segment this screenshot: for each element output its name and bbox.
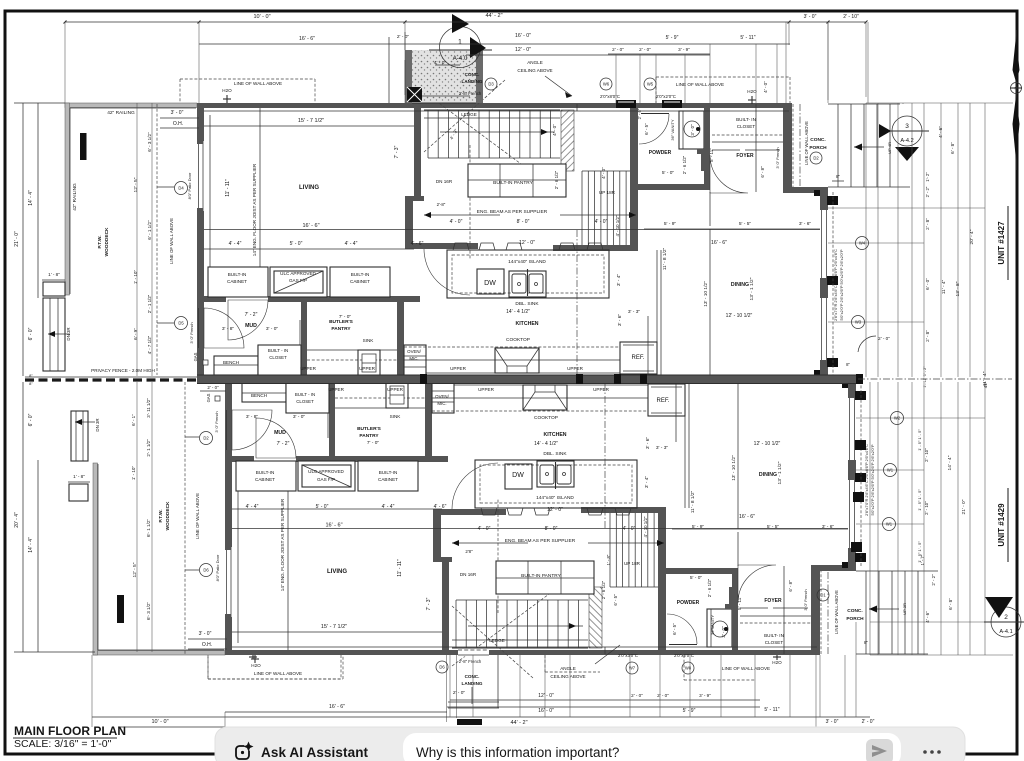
svg-text:4' - 0": 4' - 0" [478, 526, 491, 532]
svg-text:DN 16R: DN 16R [460, 572, 477, 577]
svg-text:6' - 0": 6' - 0" [28, 413, 34, 426]
svg-text:13' - 10 1/2": 13' - 10 1/2" [731, 455, 737, 481]
svg-text:UPPER: UPPER [567, 366, 584, 371]
svg-text:W5: W5 [647, 82, 654, 87]
svg-text:ANGLE: ANGLE [527, 60, 543, 65]
svg-text:LEDGE: LEDGE [489, 638, 505, 643]
svg-text:P.T.W.: P.T.W. [97, 235, 103, 248]
svg-text:D5: D5 [178, 321, 184, 326]
svg-text:4' - 0": 4' - 0" [763, 81, 768, 93]
svg-text:BENCH: BENCH [223, 360, 239, 365]
svg-text:1' - 8": 1' - 8" [48, 272, 60, 277]
svg-text:11' - 8 1/2": 11' - 8 1/2" [662, 247, 668, 270]
svg-text:H2O: H2O [747, 89, 757, 94]
svg-text:2' - 6 1/2": 2' - 6 1/2" [682, 155, 687, 174]
svg-text:3' - 6": 3' - 6" [799, 221, 812, 227]
svg-text:2' - 0": 2' - 0" [207, 385, 219, 390]
svg-text:44' - 2": 44' - 2" [485, 13, 502, 19]
svg-text:13' - 10 1/2": 13' - 10 1/2" [703, 281, 709, 307]
svg-text:5' - 9": 5' - 9" [692, 524, 705, 530]
svg-text:8": 8" [864, 640, 868, 645]
svg-text:4' - 0": 4' - 0" [623, 526, 636, 532]
svg-text:POWDER: POWDER [649, 150, 672, 156]
svg-text:44' - 2": 44' - 2" [510, 720, 527, 726]
svg-text:2' - 6 1/2": 2' - 6 1/2" [554, 170, 559, 189]
svg-text:CEILING ABOVE: CEILING ABOVE [550, 674, 585, 679]
svg-text:4' - 6": 4' - 6" [411, 241, 424, 247]
svg-text:2' - 0": 2' - 0" [878, 336, 890, 341]
svg-text:CONC.: CONC. [465, 674, 480, 679]
svg-text:36"VANITY: 36"VANITY [710, 615, 715, 635]
svg-text:11' - 4": 11' - 4" [941, 279, 947, 294]
svg-text:5' - 0": 5' - 0" [290, 241, 303, 247]
svg-text:LANDING: LANDING [462, 681, 483, 686]
svg-text:4' - 7 1/2": 4' - 7 1/2" [147, 335, 152, 354]
svg-text:14' - 4": 14' - 4" [28, 537, 34, 553]
svg-text:COOKTOP: COOKTOP [534, 415, 558, 421]
svg-text:8": 8" [29, 381, 33, 386]
svg-text:UPPER: UPPER [359, 366, 376, 371]
svg-text:W2: W2 [894, 416, 901, 421]
svg-text:H2O: H2O [251, 663, 261, 668]
svg-text:2' - 0": 2' - 0" [612, 47, 624, 52]
svg-text:3' - 3": 3' - 3" [628, 309, 641, 315]
svg-text:12' - 5": 12' - 5" [132, 562, 138, 577]
svg-text:ULC APPROVED: ULC APPROVED [308, 469, 344, 474]
svg-text:15' - 7 1/2": 15' - 7 1/2" [321, 624, 347, 630]
svg-text:2'-8" French: 2'-8" French [459, 659, 482, 664]
svg-text:A-4.1: A-4.1 [999, 629, 1012, 635]
svg-text:BENCH: BENCH [251, 393, 267, 398]
svg-text:21' - 0": 21' - 0" [961, 499, 967, 514]
svg-text:8'0" Patio Door: 8'0" Patio Door [215, 554, 220, 581]
svg-text:UNIT #1429: UNIT #1429 [997, 503, 1006, 547]
svg-text:2' - 0": 2' - 0" [657, 693, 669, 698]
svg-text:D6: D6 [439, 665, 445, 670]
svg-text:5' - 11": 5' - 11" [740, 35, 755, 41]
svg-text:DBL. SINK: DBL. SINK [543, 451, 567, 457]
svg-text:2' - 1 1/2": 2' - 1 1/2" [147, 294, 152, 313]
svg-text:4' - 10 1/2": 4' - 10 1/2" [615, 215, 620, 236]
svg-text:WOODDECK: WOODDECK [165, 501, 171, 531]
svg-text:BUILT - IN: BUILT - IN [295, 392, 315, 397]
svg-text:4' - 6": 4' - 6" [434, 504, 447, 510]
svg-text:BUILT-IN: BUILT-IN [256, 470, 275, 475]
svg-text:5' - 5": 5' - 5" [739, 221, 752, 227]
svg-text:GAS F/P: GAS F/P [289, 278, 307, 283]
svg-text:LIVING: LIVING [327, 569, 347, 575]
svg-text:ENG. BEAM AS PER SUPPLIER: ENG. BEAM AS PER SUPPLIER [477, 209, 548, 215]
svg-text:D2: D2 [203, 436, 209, 441]
svg-text:CABINET: CABINET [227, 279, 247, 284]
svg-text:20' - 4": 20' - 4" [14, 512, 20, 528]
svg-text:3' - 0": 3' - 0" [804, 14, 817, 20]
svg-text:4' - 0": 4' - 0" [450, 219, 463, 225]
svg-text:2'0"x8'0"C: 2'0"x8'0"C [600, 94, 620, 99]
svg-text:3' - 0": 3' - 0" [721, 626, 726, 638]
svg-text:10' - 0": 10' - 0" [151, 719, 168, 725]
svg-text:W4: W4 [859, 241, 866, 246]
svg-text:20' - 4": 20' - 4" [969, 229, 975, 244]
svg-text:WOODDECK: WOODDECK [104, 227, 110, 257]
svg-text:2'0"x3'0"C: 2'0"x3'0"C [618, 653, 638, 658]
svg-text:2' - 10": 2' - 10" [843, 14, 859, 20]
svg-text:MIC.: MIC. [437, 401, 446, 406]
svg-text:DN 3R: DN 3R [66, 327, 71, 340]
svg-text:12' - 0": 12' - 0" [538, 693, 554, 699]
svg-text:7' - 0": 7' - 0" [339, 314, 352, 320]
svg-text:1' - 8": 1' - 8" [606, 554, 611, 565]
svg-text:LANDING: LANDING [462, 79, 483, 84]
svg-text:KITCHEN: KITCHEN [543, 432, 566, 438]
svg-text:7' - 3": 7' - 3" [394, 145, 400, 158]
svg-text:11' - 8 1/2": 11' - 8 1/2" [690, 490, 696, 513]
svg-text:16' - 0": 16' - 0" [515, 33, 531, 39]
svg-text:PANTRY: PANTRY [359, 433, 379, 439]
svg-text:16' - 6": 16' - 6" [329, 704, 345, 710]
svg-text:4' - 6": 4' - 6" [925, 611, 930, 623]
svg-text:6' - 5": 6' - 5" [644, 123, 649, 135]
svg-text:COOKTOP: COOKTOP [506, 337, 530, 343]
svg-text:14" ENG. FLOOR JOIST AS PER SU: 14" ENG. FLOOR JOIST AS PER SUPPLIER [280, 498, 285, 591]
svg-text:LINE OF WALL ABOVE: LINE OF WALL ABOVE [234, 81, 282, 86]
svg-text:DN 3R: DN 3R [95, 418, 100, 431]
svg-text:6' - 5": 6' - 5" [613, 594, 618, 606]
svg-text:BUILT-IN PANTRY: BUILT-IN PANTRY [493, 180, 534, 186]
svg-text:12' - 0": 12' - 0" [515, 47, 531, 53]
svg-text:DBL. SINK: DBL. SINK [515, 301, 539, 307]
svg-text:OVEN/: OVEN/ [435, 394, 449, 399]
svg-text:BUILT-IN: BUILT-IN [351, 272, 370, 277]
svg-text:5'0"x2'0"P 2'6"x2'6"P 5'0"x2': 5'0"x2'0"P 2'6"x2'6"P 5'0"x2'6"P 2'6"x2'… [840, 249, 844, 321]
svg-text:5' - 11": 5' - 11" [737, 596, 742, 610]
svg-text:2' - 6 1/2": 2' - 6 1/2" [601, 580, 606, 599]
svg-text:5'0"x2'0"P 2'6"x2'6"P 5'0"x2': 5'0"x2'0"P 2'6"x2'6"P 5'0"x2'6"P 2'6"x2'… [871, 444, 875, 516]
svg-text:2' - 8": 2' - 8" [925, 218, 930, 230]
svg-text:2' - 10": 2' - 10" [924, 501, 929, 515]
svg-text:O.H.: O.H. [173, 121, 183, 127]
svg-text:3' - 0": 3' - 0" [293, 414, 306, 420]
svg-text:6' - 8": 6' - 8" [950, 142, 955, 154]
svg-text:BUILT-IN: BUILT-IN [228, 272, 247, 277]
svg-text:CONC.: CONC. [810, 137, 825, 143]
svg-text:2' - 10": 2' - 10" [924, 448, 929, 462]
svg-text:3' 0" French: 3' 0" French [803, 589, 808, 610]
svg-text:13' - 1 1/2": 13' - 1 1/2" [749, 277, 755, 300]
svg-text:UPPER: UPPER [593, 387, 610, 392]
svg-text:2' - 2": 2' - 2" [931, 574, 936, 586]
svg-text:6' - 1 1/2": 6' - 1 1/2" [147, 220, 152, 240]
svg-text:A-4.0: A-4.0 [453, 55, 468, 62]
svg-text:2'6"x7'0"R 2'6"x4'6"C 2'6"x6': 2'6"x7'0"R 2'6"x4'6"C 2'6"x6'6"P 2'6"x4'… [834, 249, 838, 321]
svg-text:GAS F/P: GAS F/P [317, 477, 335, 482]
svg-text:6' - 1": 6' - 1" [131, 414, 136, 426]
svg-text:UP 4R: UP 4R [887, 142, 892, 154]
svg-text:2'8": 2'8" [465, 549, 473, 554]
svg-text:5' - 11": 5' - 11" [764, 707, 779, 713]
svg-text:3' 0" French: 3' 0" French [189, 322, 194, 343]
svg-text:3' 0" French: 3' 0" French [214, 411, 219, 432]
svg-text:GAS: GAS [206, 393, 211, 402]
svg-text:2' - 6": 2' - 6" [637, 108, 642, 119]
svg-text:BUILT- IN: BUILT- IN [764, 633, 784, 638]
svg-text:2'- 1 1/2": 2'- 1 1/2" [146, 439, 151, 457]
svg-text:36" VANITY: 36" VANITY [670, 119, 675, 140]
svg-text:3'- 11 1/2": 3'- 11 1/2" [146, 398, 151, 418]
svg-text:H2O: H2O [772, 660, 782, 665]
svg-text:W3: W3 [855, 320, 862, 325]
svg-text:21' - 0": 21' - 0" [14, 231, 20, 247]
svg-text:16' - 6": 16' - 6" [739, 514, 755, 520]
svg-text:41": 41" [983, 381, 988, 388]
svg-text:2'0"x2'0"C: 2'0"x2'0"C [656, 94, 676, 99]
svg-text:5' - 9": 5' - 9" [664, 221, 677, 227]
svg-text:KITCHEN: KITCHEN [515, 321, 538, 327]
svg-text:FOYER: FOYER [764, 598, 782, 604]
svg-text:CABINET: CABINET [350, 279, 370, 284]
svg-text:5' - 0": 5' - 0" [316, 504, 329, 510]
svg-text:O.H.: O.H. [202, 642, 212, 648]
svg-text:LINE OF WALL ABOVE: LINE OF WALL ABOVE [254, 671, 302, 676]
svg-text:7' - 3": 7' - 3" [426, 597, 432, 610]
svg-text:2' - 6 1/2": 2' - 6 1/2" [707, 578, 712, 597]
svg-text:CLOSET: CLOSET [296, 399, 314, 404]
svg-text:MAIN FLOOR PLAN: MAIN FLOOR PLAN [14, 724, 126, 738]
svg-text:1' - 5" 1' - 5": 1' - 5" 1' - 5" [917, 429, 922, 451]
svg-text:4' - 4": 4' - 4" [246, 504, 259, 510]
svg-text:4' - 6": 4' - 6" [938, 126, 943, 138]
svg-text:LINE OF WALL ABOVE: LINE OF WALL ABOVE [169, 218, 174, 264]
svg-text:DW: DW [484, 280, 496, 287]
svg-text:UNIT #1427: UNIT #1427 [997, 221, 1006, 265]
svg-text:1'- 2": 1'- 2" [925, 172, 930, 182]
svg-text:CLOSET: CLOSET [765, 640, 784, 645]
svg-text:16' - 0": 16' - 0" [538, 708, 554, 714]
svg-text:5' - 9": 5' - 9" [683, 708, 696, 714]
svg-text:CONC.: CONC. [847, 608, 862, 614]
svg-text:3' - 4": 3' - 4" [644, 476, 650, 489]
svg-text:2'-8": 2'-8" [437, 202, 446, 207]
svg-text:DINING: DINING [731, 282, 749, 288]
svg-text:8": 8" [846, 362, 850, 367]
svg-text:UP 18R: UP 18R [624, 561, 641, 566]
svg-text:UPPER: UPPER [478, 387, 495, 392]
svg-text:CLOSET: CLOSET [737, 124, 756, 129]
svg-text:CABINET: CABINET [378, 477, 398, 482]
svg-text:8' - 0": 8' - 0" [545, 526, 558, 532]
svg-text:6'- 1 1/2": 6'- 1 1/2" [146, 519, 151, 537]
svg-text:2'6"x7'0"R 2'6"x4'6"C 2'6"x6': 2'6"x7'0"R 2'6"x4'6"C 2'6"x6'6"P 2'6"x4'… [865, 444, 869, 516]
svg-text:11' - 11": 11' - 11" [225, 179, 231, 197]
svg-text:H2O: H2O [222, 88, 232, 93]
svg-text:Ask AI Assistant: Ask AI Assistant [261, 745, 369, 760]
svg-text:4' - 0": 4' - 0" [601, 167, 606, 179]
svg-text:PRIVACY FENCE - 2.0M HIGH: PRIVACY FENCE - 2.0M HIGH [91, 368, 155, 373]
svg-text:144"x40" ISLAND: 144"x40" ISLAND [536, 495, 574, 501]
svg-text:A-4.2: A-4.2 [900, 138, 913, 144]
svg-text:SINK: SINK [363, 338, 375, 343]
svg-text:8": 8" [836, 174, 840, 179]
svg-text:3' - 3": 3' - 3" [656, 445, 669, 451]
svg-text:6'- 3 1/2": 6'- 3 1/2" [146, 602, 151, 620]
svg-text:MIC.: MIC. [409, 356, 418, 361]
svg-text:3' - 0": 3' - 0" [826, 719, 839, 725]
svg-text:12' - 0": 12' - 0" [547, 507, 563, 513]
svg-text:3' - 0": 3' - 0" [266, 326, 279, 332]
svg-text:8": 8" [29, 373, 33, 378]
svg-text:FOYER: FOYER [736, 153, 754, 159]
svg-text:16' - 6": 16' - 6" [299, 36, 315, 42]
svg-text:CLOSET: CLOSET [269, 355, 287, 360]
svg-text:14" ENG. FLOOR JOIST AS PER SU: 14" ENG. FLOOR JOIST AS PER SUPPLIER [252, 163, 257, 256]
svg-text:14' - 4": 14' - 4" [947, 455, 953, 470]
svg-text:6' - 8": 6' - 8" [788, 580, 793, 592]
svg-text:14' - 4 1/2": 14' - 4 1/2" [534, 441, 558, 447]
svg-text:42" RAILING: 42" RAILING [72, 183, 78, 211]
svg-text:12' - 10 1/2": 12' - 10 1/2" [726, 313, 753, 319]
svg-text:10' - 0": 10' - 0" [253, 14, 270, 20]
svg-text:LINE OF WALL ABOVE: LINE OF WALL ABOVE [676, 82, 724, 87]
svg-text:PORCH: PORCH [809, 145, 827, 151]
svg-text:ULC APPROVED: ULC APPROVED [280, 271, 316, 276]
svg-text:12' - 5": 12' - 5" [133, 177, 139, 192]
svg-text:6' - 0": 6' - 0" [28, 327, 34, 340]
svg-text:2' - 0": 2' - 0" [453, 690, 466, 696]
svg-text:15' - 7 1/2": 15' - 7 1/2" [298, 118, 324, 124]
svg-text:1' - 10": 1' - 10" [131, 466, 136, 481]
svg-text:5' - 5": 5' - 5" [767, 524, 780, 530]
svg-text:D3: D3 [488, 82, 494, 87]
svg-text:D2: D2 [813, 156, 819, 161]
svg-text:6' - 0": 6' - 0" [925, 278, 930, 290]
svg-text:DW: DW [512, 472, 524, 479]
svg-text:UP 3R: UP 3R [902, 603, 907, 615]
svg-text:1' - 10": 1' - 10" [133, 270, 138, 285]
svg-text:4' - 0": 4' - 0" [595, 219, 608, 225]
svg-text:W1: W1 [886, 522, 893, 527]
svg-text:14' - 4": 14' - 4" [28, 190, 34, 206]
svg-text:MUD: MUD [245, 323, 257, 329]
svg-text:2' - 0": 2' - 0" [639, 47, 651, 52]
svg-text:16' - 6": 16' - 6" [325, 523, 342, 529]
svg-text:5' - 0": 5' - 0" [662, 170, 675, 176]
svg-text:16' - 6": 16' - 6" [711, 240, 727, 246]
svg-text:1' - 7": 1' - 7" [920, 554, 925, 565]
svg-text:2'-8" French: 2'-8" French [459, 91, 482, 96]
svg-text:3' - 0": 3' - 0" [199, 631, 212, 637]
svg-text:7' - 0": 7' - 0" [367, 440, 380, 446]
svg-text:16' - 6": 16' - 6" [302, 223, 319, 229]
svg-text:5' - 0": 5' - 0" [690, 575, 703, 581]
svg-text:3' - 9": 3' - 9" [699, 693, 711, 698]
svg-text:D6: D6 [203, 568, 209, 573]
svg-text:3' - 6": 3' - 6" [822, 524, 835, 530]
svg-text:3' 0" French: 3' 0" French [775, 147, 780, 168]
svg-text:4' - 0": 4' - 0" [552, 124, 557, 136]
svg-text:14' - 4 1/2": 14' - 4 1/2" [506, 309, 530, 315]
svg-text:2: 2 [1004, 614, 1008, 621]
svg-text:BUILT- IN: BUILT- IN [736, 117, 756, 122]
svg-text:BUILT - IN: BUILT - IN [268, 348, 288, 353]
svg-text:UPPER: UPPER [328, 387, 345, 392]
svg-text:OVEN/: OVEN/ [407, 349, 421, 354]
svg-text:4' - 10 1/2": 4' - 10 1/2" [643, 516, 648, 537]
svg-text:W8: W8 [685, 666, 692, 671]
svg-text:6' - 3 1/2": 6' - 3 1/2" [147, 132, 152, 152]
svg-text:CEILING ABOVE: CEILING ABOVE [517, 68, 552, 73]
svg-text:12' - 10 1/2": 12' - 10 1/2" [754, 441, 781, 447]
svg-text:3' - 6": 3' - 6" [645, 437, 651, 450]
svg-text:SCALE: 3/16" = 1'-0": SCALE: 3/16" = 1'-0" [14, 738, 112, 750]
svg-text:DN 16R: DN 16R [436, 179, 453, 184]
svg-text:GAS: GAS [193, 352, 198, 361]
svg-text:2' - 0": 2' - 0" [862, 719, 875, 725]
svg-text:Why is this information import: Why is this information important? [416, 745, 619, 760]
svg-text:1'- 11" 1' - 2": 1'- 11" 1' - 2" [923, 366, 927, 388]
svg-text:3' - 6": 3' - 6" [617, 314, 623, 327]
svg-text:2' - 8": 2' - 8" [925, 330, 930, 342]
svg-text:7' - 2": 7' - 2" [245, 312, 258, 318]
svg-text:LINE OF WALL ABOVE: LINE OF WALL ABOVE [804, 121, 809, 165]
svg-text:6' - 5": 6' - 5" [672, 623, 677, 635]
svg-text:3' - 4": 3' - 4" [616, 274, 622, 287]
svg-text:2' - 0": 2' - 0" [397, 34, 410, 40]
svg-text:13' - 8": 13' - 8" [955, 281, 961, 296]
svg-text:CABINET: CABINET [255, 477, 275, 482]
svg-text:PANTRY: PANTRY [331, 326, 351, 332]
svg-text:6' - 8": 6' - 8" [948, 598, 953, 610]
svg-text:8' - 0": 8' - 0" [517, 219, 530, 225]
svg-text:4' - 4": 4' - 4" [345, 241, 358, 247]
svg-text:5' - 9": 5' - 9" [666, 35, 679, 41]
svg-text:ENG. BEAM AS PER SUPPLIER: ENG. BEAM AS PER SUPPLIER [505, 538, 576, 544]
svg-text:CONC.: CONC. [465, 72, 480, 77]
svg-text:1' - 8": 1' - 8" [73, 474, 85, 479]
svg-text:4' - 4": 4' - 4" [382, 504, 395, 510]
svg-text:6' - 8": 6' - 8" [760, 166, 765, 178]
svg-text:8'0" Patio Door: 8'0" Patio Door [187, 172, 192, 199]
svg-text:4' - 4": 4' - 4" [229, 241, 242, 247]
svg-text:LINE OF WALL ABOVE: LINE OF WALL ABOVE [722, 666, 770, 671]
svg-text:3' - 8": 3' - 8" [246, 414, 259, 420]
svg-text:BUTLER'S: BUTLER'S [357, 426, 382, 432]
svg-text:3: 3 [905, 123, 909, 130]
svg-text:REF.: REF. [656, 398, 669, 404]
svg-text:W6: W6 [603, 82, 610, 87]
svg-text:SINK: SINK [390, 414, 402, 419]
svg-text:UPPER: UPPER [300, 366, 317, 371]
svg-text:13' - 1 1/2": 13' - 1 1/2" [777, 461, 783, 484]
svg-text:D1: D1 [820, 593, 826, 598]
svg-text:3' - 0": 3' - 0" [171, 110, 184, 116]
svg-text:DINING: DINING [759, 472, 777, 478]
svg-text:ANGLE: ANGLE [560, 666, 576, 671]
svg-text:5' - 11": 5' - 11" [709, 148, 714, 162]
svg-text:W1: W1 [887, 468, 894, 473]
svg-text:7' - 2": 7' - 2" [277, 441, 290, 447]
svg-text:LEDGE: LEDGE [461, 112, 477, 117]
svg-text:UPPER: UPPER [387, 387, 404, 392]
svg-text:1' - 5" 1' - 5": 1' - 5" 1' - 5" [917, 489, 922, 511]
svg-text:2' - 2": 2' - 2" [925, 186, 930, 197]
svg-text:REF.: REF. [631, 355, 644, 361]
svg-text:42" RAILING: 42" RAILING [107, 110, 135, 116]
svg-text:3' - 8": 3' - 8" [222, 326, 235, 332]
svg-text:PORCH: PORCH [846, 616, 864, 622]
svg-text:LINE OF WALL ABOVE: LINE OF WALL ABOVE [834, 590, 839, 634]
svg-text:BUILT-IN PANTRY: BUILT-IN PANTRY [521, 573, 562, 579]
svg-text:P.T.W.: P.T.W. [158, 509, 164, 522]
